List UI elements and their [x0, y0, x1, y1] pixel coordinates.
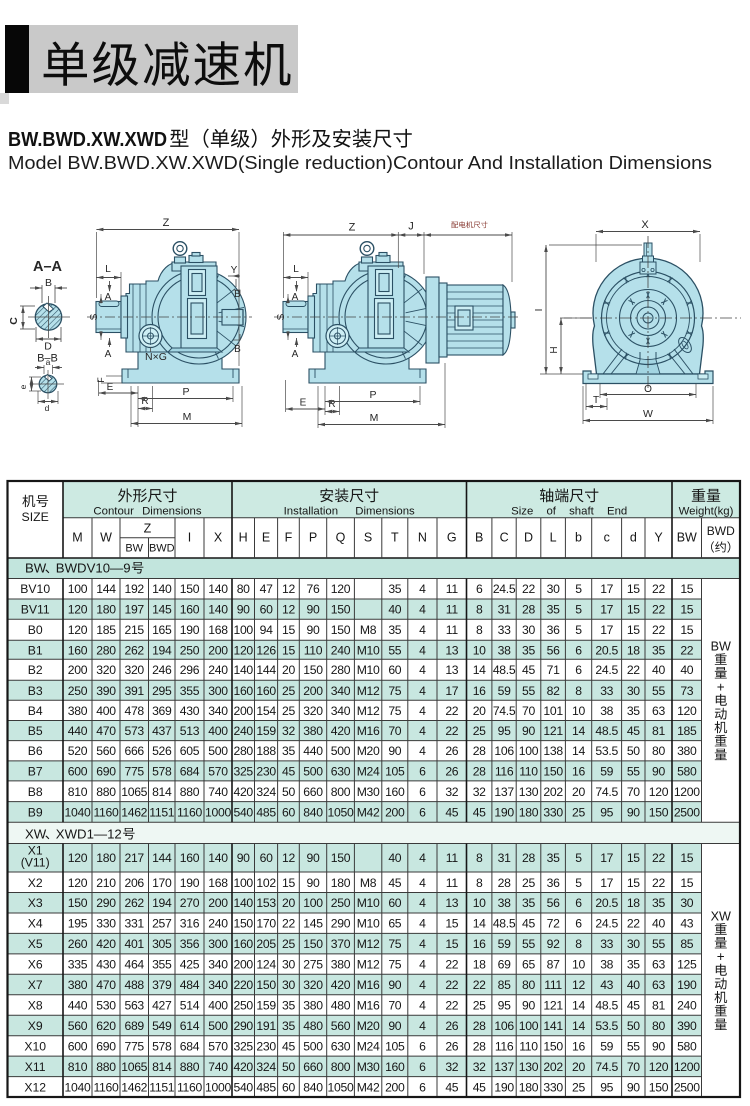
- svg-text:38: 38: [498, 896, 511, 910]
- svg-text:26: 26: [445, 744, 458, 758]
- svg-text:Z: Z: [349, 222, 356, 234]
- svg-text:X7: X7: [28, 978, 43, 992]
- svg-text:17: 17: [600, 623, 613, 637]
- svg-text:300: 300: [208, 684, 228, 698]
- svg-text:230: 230: [256, 1039, 276, 1053]
- svg-text:154: 154: [256, 704, 276, 718]
- svg-text:BW: BW: [677, 531, 697, 545]
- svg-text:150: 150: [303, 937, 323, 951]
- svg-text:320: 320: [96, 663, 116, 677]
- svg-text:340: 340: [331, 684, 351, 698]
- svg-text:540: 540: [233, 806, 253, 820]
- svg-text:25: 25: [282, 937, 295, 951]
- svg-text:100: 100: [233, 623, 253, 637]
- svg-text:563: 563: [124, 999, 144, 1013]
- svg-text:5: 5: [575, 876, 582, 890]
- svg-text:35: 35: [282, 1019, 295, 1033]
- svg-text:6: 6: [575, 643, 582, 657]
- svg-text:Size of shaft End: Size of shaft End: [511, 506, 627, 518]
- svg-text:22: 22: [652, 623, 665, 637]
- svg-text:90: 90: [237, 603, 250, 617]
- svg-text:74.5: 74.5: [595, 785, 618, 799]
- svg-text:95: 95: [498, 724, 511, 738]
- svg-text:195: 195: [68, 917, 88, 931]
- svg-text:Z: Z: [144, 522, 152, 536]
- svg-text:137: 137: [494, 785, 514, 799]
- svg-text:4: 4: [419, 582, 426, 596]
- svg-text:5: 5: [575, 603, 582, 617]
- svg-text:17: 17: [600, 876, 613, 890]
- svg-text:45: 45: [627, 999, 640, 1013]
- svg-text:M42: M42: [357, 1080, 380, 1094]
- svg-text:60: 60: [260, 851, 273, 865]
- svg-text:95: 95: [600, 1080, 613, 1094]
- svg-text:M20: M20: [357, 1019, 380, 1033]
- svg-text:22: 22: [652, 603, 665, 617]
- svg-text:500: 500: [303, 764, 323, 778]
- svg-text:14: 14: [572, 999, 585, 1013]
- svg-text:90: 90: [307, 623, 320, 637]
- svg-text:160: 160: [385, 1060, 405, 1074]
- svg-text:369: 369: [152, 704, 172, 718]
- svg-text:290: 290: [331, 917, 351, 931]
- svg-text:X3: X3: [28, 896, 43, 910]
- svg-text:159: 159: [256, 999, 276, 1013]
- svg-text:6: 6: [419, 764, 426, 778]
- svg-text:10: 10: [473, 643, 486, 657]
- svg-text:4: 4: [419, 851, 426, 865]
- svg-text:70: 70: [627, 785, 640, 799]
- svg-text:I: I: [188, 531, 191, 545]
- svg-text:B5: B5: [28, 724, 43, 738]
- svg-text:45: 45: [473, 1080, 486, 1094]
- svg-text:250: 250: [233, 999, 253, 1013]
- svg-text:BW: BW: [125, 543, 143, 555]
- svg-text:325: 325: [233, 764, 253, 778]
- svg-text:35: 35: [282, 999, 295, 1013]
- svg-text:110: 110: [304, 643, 323, 657]
- svg-text:144: 144: [152, 851, 172, 865]
- svg-text:379: 379: [152, 978, 172, 992]
- svg-text:578: 578: [152, 764, 172, 778]
- svg-text:110: 110: [519, 1039, 538, 1053]
- svg-text:59: 59: [498, 937, 511, 951]
- svg-text:B: B: [475, 531, 483, 545]
- svg-text:F: F: [96, 377, 106, 383]
- svg-text:5: 5: [575, 623, 582, 637]
- svg-text:M10: M10: [357, 917, 380, 931]
- svg-text:165: 165: [152, 623, 172, 637]
- svg-text:53.5: 53.5: [595, 1019, 618, 1033]
- svg-text:420: 420: [331, 724, 351, 738]
- svg-text:W: W: [100, 531, 112, 545]
- svg-text:630: 630: [331, 1039, 351, 1053]
- svg-text:121: 121: [543, 724, 563, 738]
- svg-text:25: 25: [572, 1080, 585, 1094]
- svg-text:141: 141: [543, 1019, 563, 1033]
- svg-text:1160: 1160: [177, 806, 203, 820]
- svg-text:N: N: [418, 531, 427, 545]
- svg-text:45: 45: [522, 663, 535, 677]
- svg-text:45: 45: [445, 1080, 458, 1094]
- svg-text:BWD: BWD: [707, 524, 735, 538]
- svg-text:95: 95: [600, 806, 613, 820]
- svg-text:15: 15: [680, 851, 693, 865]
- svg-text:4: 4: [419, 917, 426, 931]
- svg-text:65: 65: [388, 917, 401, 931]
- svg-text:1065: 1065: [121, 1060, 147, 1074]
- svg-text:90: 90: [388, 744, 401, 758]
- svg-text:262: 262: [124, 896, 144, 910]
- svg-text:340: 340: [208, 704, 228, 718]
- svg-text:116: 116: [495, 764, 514, 778]
- svg-text:35: 35: [522, 896, 535, 910]
- svg-text:1200: 1200: [674, 785, 700, 799]
- svg-text:120: 120: [68, 851, 88, 865]
- svg-text:620: 620: [96, 1019, 116, 1033]
- svg-text:26: 26: [445, 1019, 458, 1033]
- svg-text:20.5: 20.5: [595, 896, 618, 910]
- svg-text:600: 600: [68, 764, 88, 778]
- svg-text:38: 38: [498, 643, 511, 657]
- svg-text:280: 280: [233, 744, 253, 758]
- svg-text:120: 120: [331, 582, 351, 596]
- svg-text:240: 240: [331, 643, 351, 657]
- svg-text:22: 22: [652, 582, 665, 596]
- svg-text:O: O: [644, 384, 652, 395]
- svg-text:85: 85: [680, 937, 693, 951]
- svg-text:684: 684: [180, 1039, 200, 1053]
- svg-text:25: 25: [473, 999, 486, 1013]
- svg-text:Model BW.BWD.XW.XWD(Single red: Model BW.BWD.XW.XWD(Single reduction)Con…: [8, 153, 712, 173]
- svg-text:290: 290: [233, 1019, 253, 1033]
- svg-text:120: 120: [68, 876, 88, 890]
- svg-text:Y: Y: [231, 265, 238, 276]
- svg-text:Weight(kg): Weight(kg): [679, 506, 734, 518]
- svg-text:14: 14: [473, 917, 486, 931]
- svg-text:440: 440: [68, 999, 88, 1013]
- svg-text:M16: M16: [357, 999, 380, 1013]
- svg-text:43: 43: [680, 917, 693, 931]
- svg-text:150: 150: [543, 1039, 563, 1053]
- svg-text:500: 500: [208, 1019, 228, 1033]
- svg-text:48.5: 48.5: [595, 724, 618, 738]
- svg-text:120: 120: [649, 785, 669, 799]
- svg-text:15: 15: [627, 582, 640, 596]
- svg-text:880: 880: [180, 1060, 200, 1074]
- svg-text:S: S: [364, 531, 372, 545]
- svg-text:200: 200: [385, 1080, 405, 1094]
- svg-text:15: 15: [445, 937, 458, 951]
- svg-text:13: 13: [445, 896, 458, 910]
- svg-text:6: 6: [419, 806, 426, 820]
- svg-text:M16: M16: [357, 724, 380, 738]
- svg-text:15: 15: [680, 582, 693, 596]
- svg-text:150: 150: [180, 582, 200, 596]
- svg-text:191: 191: [256, 1019, 276, 1033]
- svg-text:d: d: [45, 403, 50, 413]
- svg-text:145: 145: [303, 917, 323, 931]
- svg-text:95: 95: [498, 999, 511, 1013]
- svg-text:17: 17: [600, 851, 613, 865]
- svg-text:380: 380: [677, 744, 697, 758]
- svg-text:100: 100: [303, 896, 323, 910]
- svg-text:325: 325: [233, 1039, 253, 1053]
- svg-text:90: 90: [388, 978, 401, 992]
- svg-text:400: 400: [208, 999, 228, 1013]
- svg-text:76: 76: [307, 582, 320, 596]
- svg-text:48.5: 48.5: [595, 999, 618, 1013]
- svg-text:690: 690: [96, 1039, 116, 1053]
- svg-text:30: 30: [282, 958, 295, 972]
- svg-text:72: 72: [547, 917, 560, 931]
- svg-text:100: 100: [519, 1019, 539, 1033]
- svg-text:484: 484: [180, 978, 200, 992]
- svg-text:12: 12: [282, 603, 295, 617]
- svg-text:560: 560: [331, 1019, 351, 1033]
- svg-text:60: 60: [260, 603, 273, 617]
- svg-text:35: 35: [652, 896, 665, 910]
- svg-text:120: 120: [649, 1060, 669, 1074]
- svg-text:38: 38: [600, 704, 613, 718]
- svg-text:500: 500: [303, 1039, 323, 1053]
- svg-text:80: 80: [652, 744, 665, 758]
- svg-text:E: E: [262, 531, 270, 545]
- svg-text:W: W: [643, 408, 653, 420]
- svg-text:75: 75: [388, 937, 401, 951]
- svg-text:X9: X9: [28, 1019, 43, 1033]
- svg-text:Z: Z: [163, 217, 170, 229]
- svg-text:520: 520: [68, 744, 88, 758]
- svg-text:45: 45: [522, 917, 535, 931]
- svg-text:840: 840: [303, 1080, 323, 1094]
- svg-text:90: 90: [307, 876, 320, 890]
- svg-text:50: 50: [282, 785, 295, 799]
- svg-text:12: 12: [572, 978, 585, 992]
- svg-text:130: 130: [519, 1060, 539, 1074]
- svg-text:1462: 1462: [121, 1080, 147, 1094]
- svg-text:600: 600: [68, 1039, 88, 1053]
- svg-text:262: 262: [124, 643, 144, 657]
- svg-text:690: 690: [96, 764, 116, 778]
- svg-text:573: 573: [124, 724, 144, 738]
- svg-text:M24: M24: [357, 1039, 380, 1053]
- svg-text:110: 110: [519, 764, 538, 778]
- svg-text:X8: X8: [28, 999, 43, 1013]
- svg-text:A: A: [105, 292, 112, 303]
- svg-text:1160: 1160: [93, 806, 119, 820]
- svg-text:800: 800: [331, 1060, 351, 1074]
- svg-text:d: d: [630, 531, 637, 545]
- svg-text:150: 150: [68, 896, 88, 910]
- svg-text:240: 240: [233, 724, 253, 738]
- svg-text:185: 185: [677, 724, 697, 738]
- svg-text:(V11): (V11): [21, 856, 50, 870]
- svg-text:A–A: A–A: [33, 259, 63, 275]
- svg-text:660: 660: [303, 1060, 323, 1074]
- svg-text:28: 28: [473, 744, 486, 758]
- svg-text:230: 230: [256, 764, 276, 778]
- svg-text:2500: 2500: [674, 1080, 700, 1094]
- svg-text:120: 120: [233, 643, 253, 657]
- svg-text:4: 4: [419, 704, 426, 718]
- svg-text:810: 810: [68, 785, 88, 799]
- svg-text:100: 100: [519, 744, 539, 758]
- svg-text:+: +: [717, 679, 725, 694]
- svg-text:16: 16: [572, 1039, 585, 1053]
- svg-text:775: 775: [124, 1039, 144, 1053]
- svg-text:290: 290: [96, 896, 116, 910]
- svg-text:202: 202: [543, 1060, 563, 1074]
- svg-text:15: 15: [627, 876, 640, 890]
- svg-text:420: 420: [96, 937, 116, 951]
- svg-text:22: 22: [445, 704, 458, 718]
- svg-text:296: 296: [180, 663, 200, 677]
- svg-text:217: 217: [124, 851, 144, 865]
- svg-text:1040: 1040: [65, 1080, 91, 1094]
- svg-text:F: F: [285, 531, 293, 545]
- svg-text:B4: B4: [28, 704, 43, 718]
- svg-text:90: 90: [522, 724, 535, 738]
- svg-text:684: 684: [180, 764, 200, 778]
- svg-text:630: 630: [331, 764, 351, 778]
- svg-text:150: 150: [543, 764, 563, 778]
- svg-text:90: 90: [307, 851, 320, 865]
- svg-text:55: 55: [522, 937, 535, 951]
- svg-text:14: 14: [473, 663, 486, 677]
- svg-text:60: 60: [282, 1080, 295, 1094]
- svg-text:M: M: [183, 411, 192, 423]
- svg-text:153: 153: [256, 896, 276, 910]
- svg-text:4: 4: [419, 958, 426, 972]
- svg-text:1065: 1065: [121, 785, 147, 799]
- svg-text:480: 480: [331, 999, 351, 1013]
- svg-text:10: 10: [473, 896, 486, 910]
- svg-text:60: 60: [282, 806, 295, 820]
- svg-text:740: 740: [208, 1060, 228, 1074]
- svg-text:M20: M20: [357, 744, 380, 758]
- svg-text:130: 130: [519, 785, 539, 799]
- svg-text:4: 4: [419, 876, 426, 890]
- svg-text:689: 689: [124, 1019, 144, 1033]
- svg-text:M30: M30: [357, 1060, 380, 1074]
- svg-text:30: 30: [547, 582, 560, 596]
- svg-text:XW: XW: [25, 827, 47, 842]
- svg-text:257: 257: [152, 917, 172, 931]
- svg-text:280: 280: [331, 663, 351, 677]
- svg-text:400: 400: [96, 704, 116, 718]
- svg-text:70: 70: [627, 1060, 640, 1074]
- svg-text:15: 15: [627, 623, 640, 637]
- svg-text:87: 87: [547, 958, 560, 972]
- svg-text:420: 420: [331, 978, 351, 992]
- svg-text:a: a: [46, 357, 51, 367]
- svg-text:I: I: [534, 309, 545, 312]
- svg-text:31: 31: [498, 851, 511, 865]
- svg-text:BW.BWD.XW.XWD: BW.BWD.XW.XWD: [8, 128, 167, 151]
- svg-text:17: 17: [600, 603, 613, 617]
- svg-text:18: 18: [627, 643, 640, 657]
- svg-text:170: 170: [152, 876, 172, 890]
- svg-text:170: 170: [256, 917, 276, 931]
- svg-text:560: 560: [68, 1019, 88, 1033]
- svg-text:197: 197: [124, 603, 144, 617]
- svg-text:4: 4: [419, 603, 426, 617]
- svg-text:106: 106: [494, 1019, 514, 1033]
- svg-text:Y: Y: [654, 531, 663, 545]
- svg-text:18: 18: [473, 958, 486, 972]
- svg-text:401: 401: [124, 937, 144, 951]
- svg-text:M10: M10: [357, 896, 380, 910]
- svg-text:32: 32: [445, 785, 458, 799]
- svg-text:1000: 1000: [205, 806, 231, 820]
- svg-text:M42: M42: [357, 806, 380, 820]
- svg-text:X2: X2: [28, 876, 43, 890]
- svg-text:48.5: 48.5: [493, 663, 516, 677]
- svg-text:150: 150: [256, 978, 276, 992]
- svg-text:160: 160: [233, 684, 253, 698]
- svg-text:14: 14: [572, 724, 585, 738]
- svg-text:65: 65: [522, 958, 535, 972]
- svg-text:540: 540: [233, 1080, 253, 1094]
- svg-text:6: 6: [575, 663, 582, 677]
- svg-text:437: 437: [152, 724, 172, 738]
- svg-text:P: P: [309, 531, 317, 545]
- svg-text:430: 430: [180, 704, 200, 718]
- svg-text:200: 200: [208, 643, 228, 657]
- svg-text:40: 40: [652, 663, 665, 677]
- svg-text:150: 150: [649, 1080, 669, 1094]
- svg-text:63: 63: [652, 978, 665, 992]
- svg-text:578: 578: [152, 1039, 172, 1053]
- svg-text:M24: M24: [357, 764, 380, 778]
- svg-text:22: 22: [627, 917, 640, 931]
- svg-text:185: 185: [96, 623, 116, 637]
- svg-text:331: 331: [124, 917, 144, 931]
- svg-text:400: 400: [208, 724, 228, 738]
- svg-text:28: 28: [473, 1039, 486, 1053]
- svg-text:90: 90: [652, 1039, 665, 1053]
- svg-text:6: 6: [476, 582, 483, 596]
- svg-text:35: 35: [547, 851, 560, 865]
- svg-text:5: 5: [575, 582, 582, 596]
- svg-text:55: 55: [652, 684, 665, 698]
- svg-text:120: 120: [68, 623, 88, 637]
- svg-text:63: 63: [652, 958, 665, 972]
- svg-text:b: b: [575, 531, 582, 545]
- svg-text:56: 56: [547, 643, 560, 657]
- svg-text:B9: B9: [28, 806, 43, 820]
- svg-text:22: 22: [445, 999, 458, 1013]
- svg-text:Q: Q: [336, 531, 346, 545]
- svg-text:75: 75: [388, 704, 401, 718]
- svg-text:194: 194: [152, 896, 172, 910]
- svg-text:17: 17: [600, 582, 613, 596]
- svg-text:6: 6: [575, 896, 582, 910]
- svg-text:36: 36: [547, 876, 560, 890]
- svg-text:X: X: [214, 531, 223, 545]
- svg-text:50: 50: [627, 744, 640, 758]
- svg-text:840: 840: [303, 806, 323, 820]
- svg-text:90: 90: [652, 764, 665, 778]
- svg-text:800: 800: [331, 785, 351, 799]
- svg-text:BV11: BV11: [21, 603, 50, 617]
- svg-text:X6: X6: [28, 958, 43, 972]
- svg-text:60: 60: [388, 663, 401, 677]
- svg-text:BWDV10—9: BWDV10—9: [56, 561, 131, 576]
- svg-text:1151: 1151: [149, 806, 175, 820]
- svg-text:250: 250: [331, 896, 351, 910]
